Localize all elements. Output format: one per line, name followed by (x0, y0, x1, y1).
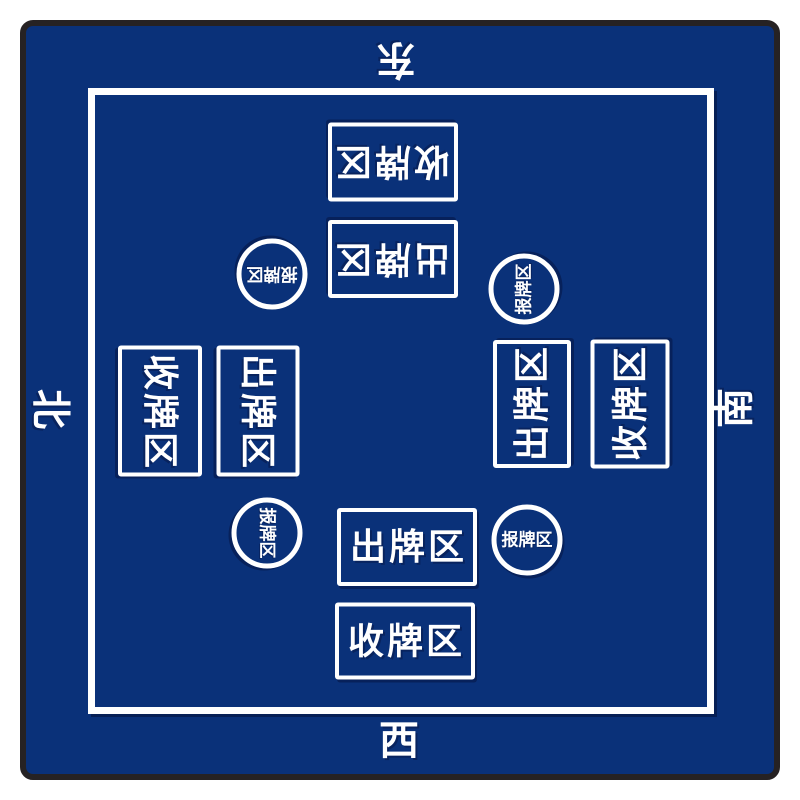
east-collect-zone[interactable]: 收牌区 (328, 123, 458, 202)
east-report-zone-label: 报牌区 (247, 266, 298, 283)
east-report-zone[interactable]: 报牌区 (237, 239, 308, 310)
south-collect-zone-label: 收牌区 (612, 344, 648, 461)
compass-north-label: 北 (30, 389, 70, 429)
north-play-zone[interactable]: 出牌区 (217, 346, 300, 477)
east-play-zone-label: 出牌区 (333, 241, 450, 277)
north-collect-zone[interactable]: 收牌区 (118, 346, 202, 477)
east-collect-zone-label: 收牌区 (333, 144, 450, 180)
west-play-zone[interactable]: 出牌区 (337, 508, 477, 586)
north-collect-zone-label: 收牌区 (142, 354, 178, 471)
west-play-zone-label: 出牌区 (350, 529, 467, 565)
south-play-zone-label: 出牌区 (514, 344, 550, 461)
south-play-zone[interactable]: 出牌区 (493, 340, 571, 468)
west-report-zone[interactable]: 报牌区 (492, 505, 563, 576)
south-report-zone[interactable]: 报牌区 (489, 254, 560, 325)
card-table-mat: 东 南 西 北 收牌区 出牌区 报牌区 出牌区 收牌区 报牌区 出牌区 收牌区 … (0, 0, 800, 800)
compass-west-label: 西 (379, 721, 419, 761)
west-collect-zone-label: 收牌区 (348, 623, 465, 659)
east-play-zone[interactable]: 出牌区 (328, 220, 458, 298)
west-report-zone-label: 报牌区 (502, 532, 553, 549)
north-play-zone-label: 出牌区 (240, 354, 276, 471)
north-report-zone-label: 报牌区 (259, 508, 276, 559)
compass-east-label: 东 (376, 39, 416, 79)
south-report-zone-label: 报牌区 (516, 264, 533, 315)
compass-south-label: 南 (715, 388, 755, 428)
west-collect-zone[interactable]: 收牌区 (335, 603, 475, 680)
north-report-zone[interactable]: 报牌区 (232, 498, 303, 569)
south-collect-zone[interactable]: 收牌区 (591, 340, 670, 469)
